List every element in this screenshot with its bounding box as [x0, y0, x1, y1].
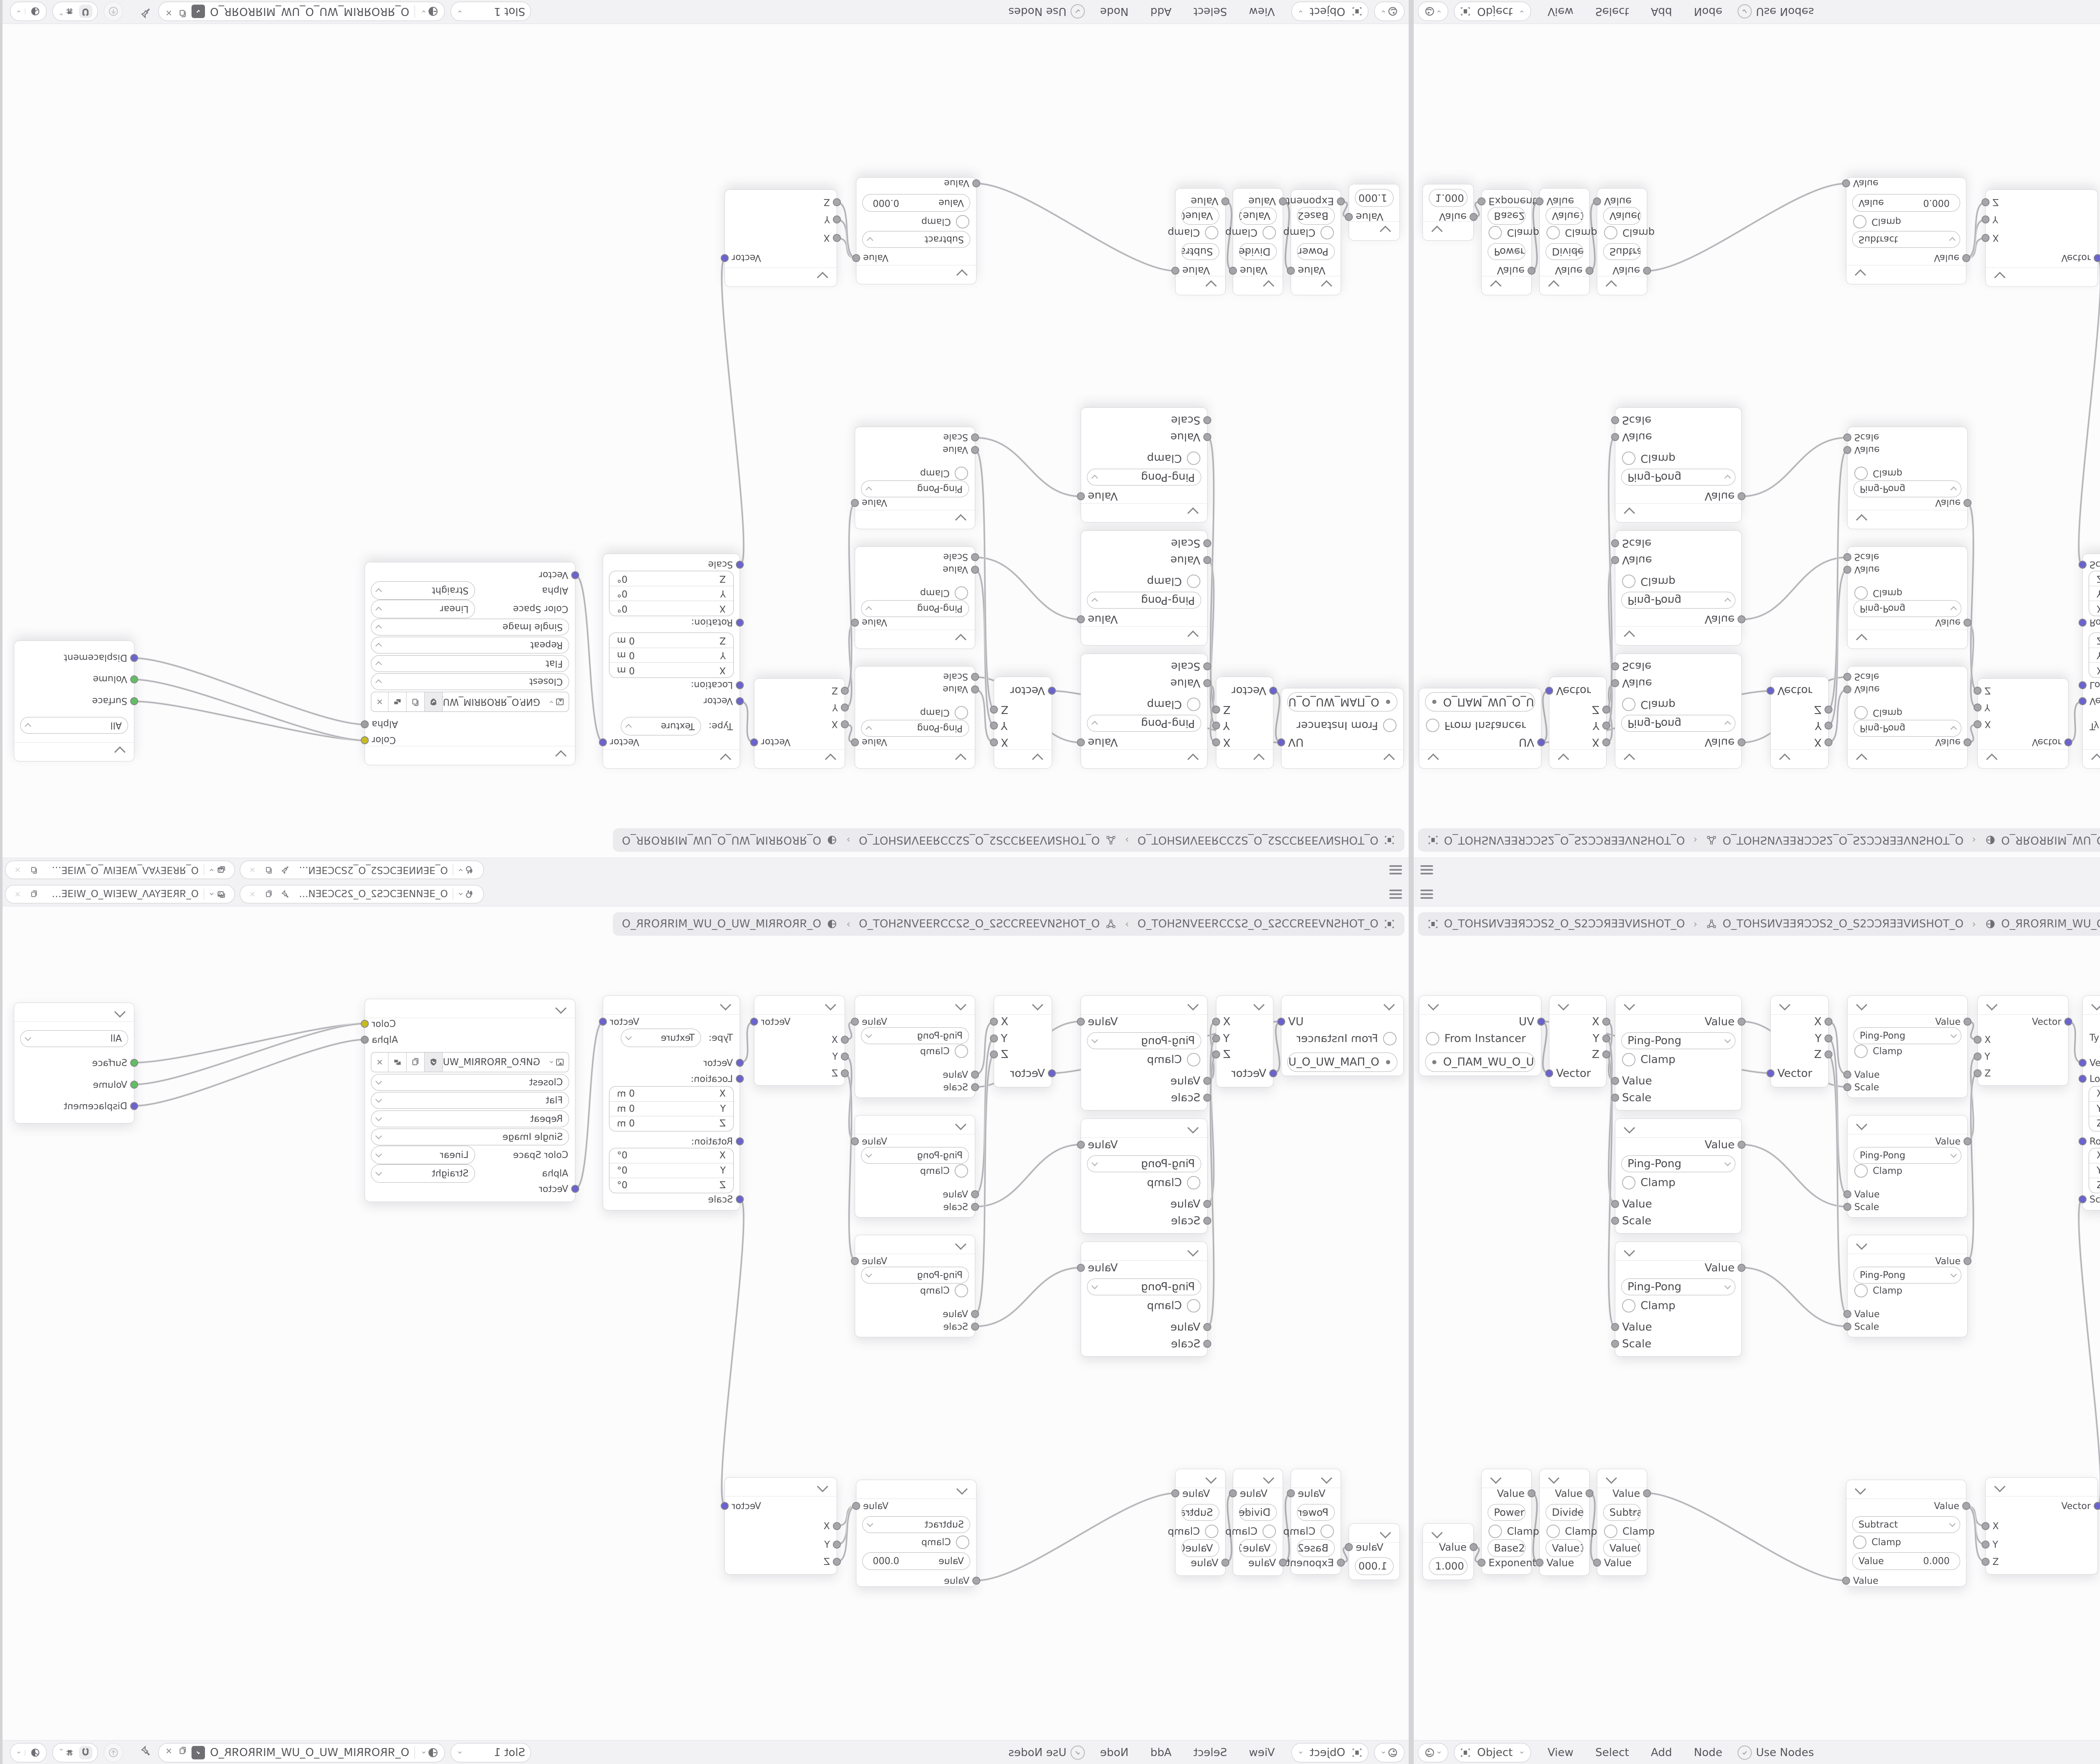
uv-map-name[interactable]: O_ПAM_WU_O_UW_MAП_O: [1287, 1056, 1379, 1068]
socket-X[interactable]: [833, 234, 841, 242]
collapse-chevron-icon[interactable]: [1855, 269, 1866, 281]
socket-Scale[interactable]: [1611, 1340, 1619, 1348]
socket-Value[interactable]: [1287, 267, 1295, 275]
socket-Value[interactable]: [852, 254, 860, 262]
socket-Value[interactable]: [1963, 499, 1971, 507]
socket-X[interactable]: [990, 1018, 998, 1026]
math-pingpong-b1[interactable]: ValuePing-PongClampValueScale: [1847, 666, 1968, 769]
menu-add[interactable]: Add: [1150, 5, 1171, 18]
socket-Value[interactable]: [1963, 1137, 1971, 1145]
socket-Exponent[interactable]: [1478, 1559, 1486, 1567]
socket-Scale[interactable]: [1611, 416, 1619, 424]
socket-Value[interactable]: [851, 1257, 859, 1265]
uv-map-name[interactable]: O_ПAM_WU_O_UW_MAП_O: [1443, 1056, 1535, 1068]
vector-xyz-fields[interactable]: X0 mY0 mZ0 m: [609, 633, 734, 678]
socket-Z[interactable]: [1974, 687, 1982, 695]
collapse-chevron-icon[interactable]: [1380, 226, 1391, 237]
dropdown-ping-pong[interactable]: Ping-Pong: [1853, 720, 1961, 737]
socket-Vector[interactable]: [2079, 697, 2087, 705]
socket-Value[interactable]: [1593, 1559, 1601, 1567]
collapse-chevron-icon[interactable]: [955, 753, 966, 765]
collapse-chevron-icon[interactable]: [1263, 280, 1274, 291]
socket-Value[interactable]: [1611, 1323, 1619, 1331]
breadcrumb-item[interactable]: O_ЯROЯRIM_WU_O_UW_MIЯROЯR_O: [2001, 834, 2100, 846]
math-pingpong-b2[interactable]: ValuePing-PongClampValueScale: [855, 1115, 975, 1218]
socket-Y[interactable]: [1824, 722, 1832, 730]
node-header[interactable]: [1986, 268, 2097, 286]
dropdown-all[interactable]: All: [20, 1030, 128, 1047]
dropdown-ping-pong[interactable]: Ping-Pong: [1853, 1147, 1961, 1164]
snap-magnet-icon[interactable]: [79, 1746, 92, 1759]
checkbox-clamp[interactable]: Clamp: [1615, 1176, 1741, 1190]
node-header[interactable]: [725, 1478, 837, 1496]
checkbox-clamp[interactable]: Clamp: [1615, 574, 1741, 588]
node-header[interactable]: [1986, 1478, 2097, 1496]
socket-Vector[interactable]: [571, 571, 579, 579]
socket-X[interactable]: [1602, 1018, 1610, 1026]
collapse-chevron-icon[interactable]: [1994, 272, 2005, 283]
combine-xyz-node-2[interactable]: VectorXYZ: [724, 1477, 837, 1575]
socket-Value[interactable]: [1963, 1018, 1971, 1026]
socket-Vector[interactable]: [1048, 1069, 1056, 1077]
node-header[interactable]: [1771, 996, 1828, 1015]
socket-Scale[interactable]: [1611, 1094, 1619, 1102]
math-divide-node[interactable]: ValueDivideClampValue1.000Value: [1539, 1469, 1590, 1576]
collapse-chevron-icon[interactable]: [1558, 753, 1569, 765]
collapse-chevron-icon[interactable]: [817, 1481, 828, 1492]
math-divide-node[interactable]: ValueDivideClampValue1.000Value: [1233, 188, 1283, 295]
menu-add[interactable]: Add: [1651, 5, 1672, 18]
dropdown-ping-pong[interactable]: Ping-Pong: [861, 600, 969, 617]
collapse-chevron-icon[interactable]: [825, 753, 836, 765]
socket-Y[interactable]: [1982, 1541, 1990, 1549]
collapse-chevron-icon[interactable]: [114, 746, 126, 758]
socket-Value[interactable]: [1203, 1200, 1211, 1208]
node-header[interactable]: [603, 996, 740, 1015]
uv-map-selector[interactable]: O_ПAM_WU_O_UW_MAП_O✕: [1287, 1053, 1397, 1072]
collapse-chevron-icon[interactable]: [1205, 1473, 1217, 1484]
collapse-chevron-icon[interactable]: [1205, 280, 1217, 291]
socket-Y[interactable]: [841, 1053, 849, 1060]
socket-Value[interactable]: [1842, 1577, 1850, 1585]
socket-Scale[interactable]: [1203, 416, 1211, 424]
socket-Value[interactable]: [851, 738, 859, 746]
checkbox-clamp[interactable]: Clamp: [1233, 1524, 1283, 1538]
socket-Value[interactable]: [1738, 492, 1746, 500]
socket-Value[interactable]: [1077, 738, 1085, 746]
socket-Z[interactable]: [990, 1050, 998, 1058]
socket-Value[interactable]: [1843, 1310, 1851, 1318]
socket-Value[interactable]: [1287, 1489, 1295, 1497]
menu-select[interactable]: Select: [1595, 1746, 1629, 1759]
socket-Value[interactable]: [1345, 1543, 1353, 1551]
use-nodes-checkbox[interactable]: Use Nodes: [1738, 5, 1814, 19]
dropdown-ping-pong[interactable]: Ping-Pong: [861, 480, 969, 497]
math-subtract-node[interactable]: ValueSubtractClampValue0.000Value: [1175, 188, 1226, 295]
parent-node-tree-button[interactable]: [104, 1743, 123, 1762]
socket-UV[interactable]: [1537, 1018, 1545, 1026]
collapse-chevron-icon[interactable]: [1548, 1473, 1559, 1484]
socket-Vector[interactable]: [750, 738, 758, 746]
collapse-chevron-icon[interactable]: [956, 269, 968, 281]
collapse-chevron-icon[interactable]: [114, 1006, 126, 1018]
collapse-chevron-icon[interactable]: [1187, 507, 1199, 519]
checkbox-clamp[interactable]: Clamp: [1081, 574, 1207, 588]
socket-Z[interactable]: [841, 687, 849, 695]
node-header[interactable]: [1978, 749, 2068, 768]
collapse-chevron-icon[interactable]: [1856, 634, 1867, 645]
socket-Value[interactable]: [972, 179, 980, 187]
collapse-chevron-icon[interactable]: [1856, 999, 1867, 1011]
editor-type-selector[interactable]: [1374, 1743, 1404, 1762]
checkbox-clamp[interactable]: Clamp: [1848, 466, 1967, 480]
fake-user-button[interactable]: [425, 692, 443, 711]
socket-Value[interactable]: [1171, 267, 1179, 275]
overlays-control[interactable]: [10, 1743, 47, 1762]
number-field[interactable]: Value1.000: [1239, 207, 1277, 225]
socket-Scale[interactable]: [1611, 539, 1619, 547]
dropdown-ping-pong[interactable]: Ping-Pong: [1621, 1278, 1735, 1295]
pin-button[interactable]: [277, 885, 294, 903]
socket-Value[interactable]: [1528, 1489, 1536, 1497]
socket-Vector[interactable]: [750, 1018, 758, 1026]
socket-Vector[interactable]: [1545, 1069, 1553, 1077]
pin-icon[interactable]: [140, 4, 152, 19]
breadcrumb-item[interactable]: O_TOHSИVƎƎЯƆƆS2_O_S2ƆƆЯƎƎVИSHOT_O: [1444, 918, 1685, 930]
collapse-chevron-icon[interactable]: [1986, 999, 1998, 1011]
socket-UV[interactable]: [1277, 1018, 1285, 1026]
collapse-chevron-icon[interactable]: [817, 272, 828, 283]
dropdown-power[interactable]: Power: [1488, 243, 1525, 260]
uv-map-selector[interactable]: O_ПAM_WU_O_UW_MAП_O✕: [1287, 692, 1397, 711]
socket-Value[interactable]: [1345, 213, 1353, 221]
socket-Value[interactable]: [1843, 685, 1851, 693]
socket-Value[interactable]: [1229, 267, 1237, 275]
socket-Surface[interactable]: [130, 697, 138, 705]
menu-view[interactable]: View: [1548, 1746, 1574, 1759]
socket-Scale[interactable]: [1843, 673, 1851, 681]
dropdown-divide[interactable]: Divide: [1239, 243, 1277, 260]
socket-Value[interactable]: [1203, 679, 1211, 687]
socket-Exponent[interactable]: [1478, 197, 1486, 205]
uv-map-node[interactable]: UVFrom InstancerO_ПAM_WU_O_UW_MAП_O✕: [1419, 688, 1541, 769]
socket-Scale[interactable]: [1843, 433, 1851, 441]
node-header[interactable]: [855, 1116, 975, 1134]
checkbox-clamp[interactable]: Clamp: [856, 215, 976, 229]
number-field[interactable]: Value0.000: [1852, 194, 1960, 212]
socket-X[interactable]: [990, 738, 998, 746]
vector-field-y[interactable]: Y0 m: [2089, 648, 2100, 663]
vector-field-y[interactable]: Y0°: [2089, 586, 2100, 601]
socket-Vector[interactable]: [2064, 738, 2072, 746]
socket-Value[interactable]: [1221, 197, 1229, 205]
collapse-chevron-icon[interactable]: [1428, 753, 1439, 765]
use-nodes-checkbox[interactable]: Use Nodes: [1008, 1746, 1085, 1760]
socket-Scale[interactable]: [736, 561, 744, 569]
number-field[interactable]: Value0.000: [862, 194, 970, 212]
socket-Y[interactable]: [1212, 722, 1220, 730]
dropdown-straight[interactable]: Straight: [371, 581, 475, 600]
collapse-chevron-icon[interactable]: [2091, 753, 2100, 765]
socket-Scale[interactable]: [971, 553, 979, 561]
menu-burger-icon[interactable]: [1420, 890, 1433, 899]
socket-Value[interactable]: [1843, 566, 1851, 574]
socket-Scale[interactable]: [1843, 553, 1851, 561]
dropdown-subtract[interactable]: Subtract: [1603, 1504, 1641, 1521]
socket-Exponent[interactable]: [1337, 1559, 1345, 1567]
separate-xyz-node-2[interactable]: XYZVector: [1770, 677, 1829, 769]
remove-viewlayer-button[interactable]: [10, 861, 26, 879]
collapse-chevron-icon[interactable]: [1606, 1473, 1617, 1484]
node-header[interactable]: [2083, 749, 2100, 768]
node-header[interactable]: [1848, 510, 1967, 529]
checkbox-clamp[interactable]: Clamp: [1081, 1176, 1207, 1190]
image-filename[interactable]: GИP.O_ЯROЯRIM_WU_O_UW_MIЯROЯR_O.PNG: [443, 1053, 544, 1072]
socket-Volume[interactable]: [130, 675, 138, 683]
vector-field-z[interactable]: Z0 m: [609, 1116, 733, 1131]
pack-image-button[interactable]: [388, 692, 407, 711]
vector-field-y[interactable]: Y0°: [609, 1163, 733, 1178]
socket-Value[interactable]: [851, 499, 859, 507]
uv-map-node[interactable]: UVFrom InstancerO_ПAM_WU_O_UW_MAП_O✕: [1281, 688, 1404, 769]
socket-X[interactable]: [1602, 738, 1610, 746]
collapse-chevron-icon[interactable]: [1855, 1483, 1866, 1495]
vector-field-z[interactable]: Z0 m: [609, 633, 733, 648]
socket-Alpha[interactable]: [361, 720, 369, 728]
checkbox-clamp[interactable]: Clamp: [1848, 1044, 1967, 1058]
node-header[interactable]: [1615, 996, 1741, 1015]
socket-Value[interactable]: [851, 1018, 859, 1026]
collapse-chevron-icon[interactable]: [1321, 280, 1332, 291]
vector-field-z[interactable]: Z0°: [609, 1178, 733, 1193]
breadcrumb-item[interactable]: O_ЯROЯRIM_WU_O_UW_MIЯROЯR_O: [2001, 918, 2100, 930]
checkbox-clamp[interactable]: Clamp: [1615, 697, 1741, 711]
number-field[interactable]: 1.000: [1355, 189, 1394, 207]
vector-field-z[interactable]: Z0 m: [2089, 633, 2100, 648]
separate-xyz-node-2[interactable]: XYZVector: [994, 677, 1052, 769]
socket-Value[interactable]: [1203, 1077, 1211, 1085]
socket-Value[interactable]: [1077, 1264, 1085, 1272]
number-field[interactable]: Value0.000: [862, 1552, 970, 1570]
pin-icon[interactable]: [140, 1745, 152, 1760]
vector-field-y[interactable]: Y0°: [609, 586, 733, 601]
combine-xyz-node-2[interactable]: VectorXYZ: [724, 189, 837, 287]
checkbox-clamp[interactable]: Clamp: [1081, 1053, 1207, 1067]
breadcrumb-item[interactable]: O_ЯROЯRIM_WU_O_UW_MIЯROЯR_O: [622, 918, 822, 930]
socket-Value[interactable]: [851, 1137, 859, 1145]
node-header[interactable]: [725, 268, 837, 286]
socket-Value[interactable]: [1536, 197, 1543, 205]
value-node[interactable]: Value1.000: [1349, 1523, 1400, 1580]
mapping-node[interactable]: VectorType:TextureVectorLocation:X0 mY0 …: [2082, 995, 2100, 1210]
node-header[interactable]: [855, 510, 975, 529]
dropdown-ping-pong[interactable]: Ping-Pong: [1621, 715, 1735, 732]
combine-xyz-node-1[interactable]: VectorXYZ: [754, 678, 845, 769]
checkbox-clamp[interactable]: Clamp: [1615, 1299, 1741, 1313]
editor-type-selector[interactable]: [1418, 2, 1448, 21]
socket-Scale[interactable]: [2079, 1195, 2087, 1203]
socket-Scale[interactable]: [1203, 662, 1211, 670]
collapse-chevron-icon[interactable]: [1253, 999, 1265, 1011]
checkbox-clamp[interactable]: Clamp: [1176, 226, 1225, 240]
value-node[interactable]: Value1.000: [1423, 1523, 1474, 1580]
math-subtract-node[interactable]: ValueSubtractClampValue0.000Value: [1175, 1469, 1226, 1576]
collapse-chevron-icon[interactable]: [555, 1003, 567, 1014]
checkbox-clamp[interactable]: Clamp: [855, 1164, 975, 1178]
vector-field-x[interactable]: X0°: [2089, 1148, 2100, 1163]
breadcrumb-item[interactable]: O_ЯROЯRIM_WU_O_UW_MIЯROЯR_O: [622, 834, 822, 846]
number-field[interactable]: Base2.000: [1297, 207, 1335, 225]
socket-Value[interactable]: [1963, 1257, 1971, 1265]
socket-Value[interactable]: [1203, 556, 1211, 564]
combine-xyz-node-2[interactable]: VectorXYZ: [1985, 1477, 2098, 1575]
math-pingpong-a2[interactable]: ValuePing-PongClampValueScale: [1615, 530, 1742, 646]
image-datablock-selector[interactable]: GИP.O_ЯROЯRIM_WU_O_UW_MIЯROЯR_O.PNG: [371, 692, 569, 712]
socket-Vector[interactable]: [736, 1059, 744, 1067]
checkbox-clamp[interactable]: Clamp: [1846, 1535, 1966, 1549]
collapse-chevron-icon[interactable]: [1779, 753, 1790, 765]
socket-Scale[interactable]: [736, 1195, 744, 1203]
collapse-chevron-icon[interactable]: [1856, 1119, 1867, 1130]
math-pingpong-b3[interactable]: ValuePing-PongClampValueScale: [1847, 1235, 1968, 1337]
dropdown-ping-pong[interactable]: Ping-Pong: [1621, 469, 1735, 486]
socket-Vector[interactable]: [1269, 1069, 1277, 1077]
socket-Value[interactable]: [971, 566, 979, 574]
collapse-chevron-icon[interactable]: [1558, 999, 1569, 1011]
dropdown-ping-pong[interactable]: Ping-Pong: [1853, 600, 1961, 617]
node-header[interactable]: [1846, 1480, 1966, 1499]
dropdown-subtract[interactable]: Subtract: [1181, 1504, 1219, 1521]
socket-Value[interactable]: [1611, 1200, 1619, 1208]
breadcrumb-item[interactable]: O_TOHSИVƎƎЯƆƆS2_O_S2ƆƆЯƎƎVИSHOT_O: [859, 918, 1100, 930]
collapse-chevron-icon[interactable]: [1032, 999, 1043, 1011]
node-header[interactable]: [1081, 1242, 1207, 1261]
checkbox-clamp[interactable]: Clamp: [1233, 226, 1283, 240]
socket-Scale[interactable]: [971, 1203, 979, 1211]
dropdown-subtract[interactable]: Subtract: [1852, 1516, 1960, 1533]
socket-Vector[interactable]: [1767, 687, 1774, 695]
material-slot-dropdown[interactable]: Slot 1: [451, 1743, 531, 1762]
snapping-control[interactable]: [52, 2, 98, 21]
socket-Value[interactable]: [1843, 1071, 1851, 1079]
scene-selector[interactable]: O_ƎEИИƎEƆCS2_O_2SƆCƎEИ...: [240, 861, 484, 879]
node-header[interactable]: [994, 749, 1052, 768]
socket-Value[interactable]: [1963, 738, 1971, 746]
socket-Value[interactable]: [1843, 446, 1851, 454]
node-header[interactable]: [1419, 996, 1541, 1015]
collapse-chevron-icon[interactable]: [1187, 999, 1199, 1011]
node-header[interactable]: [856, 265, 976, 284]
collapse-chevron-icon[interactable]: [1624, 630, 1635, 642]
node-header[interactable]: [2083, 996, 2100, 1015]
uv-map-selector[interactable]: O_ПAM_WU_O_UW_MAП_O✕: [1425, 1053, 1535, 1072]
checkbox-from-instancer[interactable]: From Instancer: [1419, 1032, 1541, 1046]
vector-field-x[interactable]: X0°: [609, 601, 733, 616]
new-scene-button[interactable]: [260, 885, 277, 903]
math-subtract-node[interactable]: ValueSubtractClampValue0.000Value: [1597, 1469, 1647, 1576]
socket-Z[interactable]: [1602, 1050, 1610, 1058]
socket-Vector[interactable]: [736, 697, 744, 705]
node-header[interactable]: [855, 1235, 975, 1254]
new-material-button[interactable]: [177, 5, 188, 18]
math-power-node[interactable]: ValuePowerClampBase2.000Exponent: [1481, 189, 1532, 295]
socket-Value[interactable]: [1077, 615, 1085, 623]
checkbox-clamp[interactable]: Clamp: [856, 1535, 976, 1549]
menu-add[interactable]: Add: [1150, 1746, 1171, 1759]
socket-Vector[interactable]: [1048, 687, 1056, 695]
vector-field-y[interactable]: Y0 m: [609, 1101, 733, 1116]
socket-X[interactable]: [1974, 1036, 1982, 1044]
vector-xyz-fields[interactable]: X0 mY0 mZ0 m: [2089, 1086, 2100, 1131]
shading-context-dropdown[interactable]: Object: [1291, 2, 1368, 21]
unlink-material-button[interactable]: [164, 1746, 174, 1759]
material-selector[interactable]: O_ЯROЯRIM_WU_O_UW_MIЯROЯR_O: [158, 1743, 445, 1762]
socket-Value[interactable]: [971, 1190, 979, 1198]
node-header[interactable]: [1216, 749, 1273, 768]
math-subtract-node-2[interactable]: ValueSubtractClampValue0.000Value: [856, 177, 976, 284]
socket-Volume[interactable]: [130, 1081, 138, 1089]
socket-Value[interactable]: [1203, 1323, 1211, 1331]
menu-burger-icon[interactable]: [1420, 866, 1433, 875]
shading-context-dropdown[interactable]: Object: [1454, 1743, 1531, 1762]
pack-image-button[interactable]: [388, 1053, 407, 1072]
socket-Value[interactable]: [1963, 619, 1971, 627]
socket-Value[interactable]: [1077, 492, 1085, 500]
socket-Exponent[interactable]: [1337, 197, 1345, 205]
socket-Surface[interactable]: [130, 1059, 138, 1067]
use-nodes-checkbox[interactable]: Use Nodes: [1008, 5, 1085, 19]
breadcrumb-item[interactable]: O_TOHSИVƎƎЯƆƆS2_O_S2ƆƆЯƎƎVИSHOT_O: [1444, 834, 1685, 846]
new-image-button[interactable]: [407, 1053, 425, 1072]
socket-Rotation:[interactable]: [736, 1137, 744, 1145]
breadcrumb-item[interactable]: O_TOHSИVƎƎЯƆƆS2_O_S2ƆƆЯƎƎVИSHOT_O: [1137, 918, 1378, 930]
checkbox-clamp[interactable]: Clamp: [1482, 226, 1531, 240]
dropdown-ping-pong[interactable]: Ping-Pong: [1853, 1027, 1961, 1044]
number-field[interactable]: 1.000: [1429, 189, 1467, 207]
number-field[interactable]: Value0.000: [1603, 207, 1641, 225]
vector-xyz-fields[interactable]: X0°Y0°Z0°: [2089, 1148, 2100, 1193]
checkbox-clamp[interactable]: Clamp: [1848, 1284, 1967, 1298]
socket-Z[interactable]: [833, 198, 841, 206]
socket-Vector[interactable]: [571, 1185, 579, 1193]
uv-map-name[interactable]: O_ПAM_WU_O_UW_MAП_O: [1443, 696, 1535, 708]
number-field[interactable]: Value0.000: [1852, 1552, 1960, 1570]
checkbox-clamp[interactable]: Clamp: [855, 1284, 975, 1298]
checkbox-clamp[interactable]: Clamp: [1176, 1524, 1225, 1538]
socket-Scale[interactable]: [971, 433, 979, 441]
mapping-node[interactable]: VectorType:TextureVectorLocation:X0 mY0 …: [603, 995, 740, 1210]
socket-Y[interactable]: [1212, 1034, 1220, 1042]
vector-field-y[interactable]: Y0 m: [609, 648, 733, 663]
dropdown-subtract[interactable]: Subtract: [1603, 243, 1641, 260]
node-header[interactable]: [1848, 749, 1967, 768]
collapse-chevron-icon[interactable]: [1856, 753, 1867, 765]
math-subtract-node-2[interactable]: ValueSubtractClampValue0.000Value: [1846, 1480, 1966, 1587]
editor-type-selector[interactable]: [1374, 2, 1404, 21]
menu-node[interactable]: Node: [1100, 1746, 1129, 1759]
collapse-chevron-icon[interactable]: [1380, 1527, 1391, 1538]
checkbox-clamp[interactable]: Clamp: [855, 706, 975, 720]
collapse-chevron-icon[interactable]: [1624, 507, 1635, 519]
dropdown-flat[interactable]: Flat: [371, 655, 569, 672]
vector-field-x[interactable]: X0 m: [609, 1087, 733, 1101]
collapse-chevron-icon[interactable]: [1856, 514, 1867, 525]
math-pingpong-a2[interactable]: ValuePing-PongClampValueScale: [1615, 1118, 1742, 1234]
collapse-chevron-icon[interactable]: [1187, 1122, 1199, 1134]
collapse-chevron-icon[interactable]: [1321, 1473, 1332, 1484]
socket-Y[interactable]: [1602, 722, 1610, 730]
socket-Scale[interactable]: [1843, 1203, 1851, 1211]
